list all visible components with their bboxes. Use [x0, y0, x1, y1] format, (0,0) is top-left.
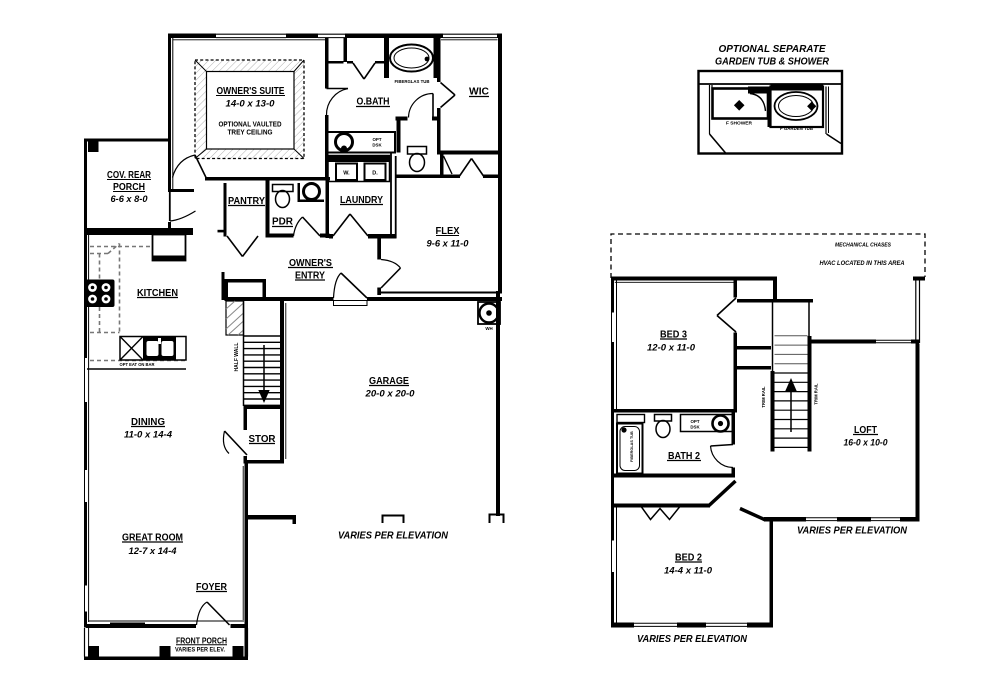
svg-text:TRIM RAIL: TRIM RAIL	[761, 386, 766, 408]
svg-text:VARIES PER ELEVATION: VARIES PER ELEVATION	[797, 525, 907, 537]
svg-text:TRIM RAIL: TRIM RAIL	[814, 383, 819, 405]
svg-text:20-0 x 20-0: 20-0 x 20-0	[364, 389, 415, 400]
svg-text:FRONT PORCH: FRONT PORCH	[176, 636, 227, 646]
svg-text:14-4 x 11-0: 14-4 x 11-0	[664, 566, 713, 577]
svg-text:W.: W.	[343, 171, 350, 177]
svg-text:12-7 x 14-4: 12-7 x 14-4	[129, 546, 178, 557]
svg-text:VARIES PER ELEV.: VARIES PER ELEV.	[175, 647, 225, 654]
svg-text:14-0 x 13-0: 14-0 x 13-0	[226, 99, 276, 110]
svg-text:TREY CEILING: TREY CEILING	[228, 130, 273, 137]
svg-text:11-0 x 14-4: 11-0 x 14-4	[124, 430, 173, 441]
svg-text:DSK: DSK	[372, 143, 382, 148]
svg-text:PDR: PDR	[272, 217, 294, 228]
svg-text:VARIES PER ELEVATION: VARIES PER ELEVATION	[338, 530, 448, 542]
svg-text:GARDEN TUB & SHOWER: GARDEN TUB & SHOWER	[715, 56, 829, 68]
svg-text:FIBERGLAS TUB: FIBERGLAS TUB	[630, 431, 634, 462]
svg-text:O.BATH: O.BATH	[357, 97, 390, 108]
svg-text:F GARDEN TUB: F GARDEN TUB	[780, 126, 813, 131]
svg-text:FIBERGLAS TUB: FIBERGLAS TUB	[395, 79, 430, 84]
svg-text:OPTIONAL SEPARATE: OPTIONAL SEPARATE	[719, 43, 827, 55]
svg-text:16-0 x 10-0: 16-0 x 10-0	[844, 438, 889, 449]
svg-text:MECHANICAL CHASES: MECHANICAL CHASES	[835, 243, 892, 249]
svg-text:D.: D.	[372, 171, 378, 177]
svg-text:WH: WH	[485, 326, 492, 331]
svg-text:OPT EAT ON BAR: OPT EAT ON BAR	[120, 362, 156, 367]
svg-text:OPT: OPT	[372, 137, 381, 142]
svg-text:DSK: DSK	[690, 425, 700, 430]
svg-text:9-6 x 11-0: 9-6 x 11-0	[427, 239, 470, 250]
svg-text:6-6 x 8-0: 6-6 x 8-0	[111, 194, 149, 205]
svg-text:F SHOWER: F SHOWER	[726, 121, 753, 126]
svg-text:HVAC LOCATED IN THIS AREA: HVAC LOCATED IN THIS AREA	[820, 260, 905, 267]
svg-text:OPT: OPT	[690, 419, 699, 424]
svg-text:VARIES PER ELEVATION: VARIES PER ELEVATION	[637, 633, 747, 645]
svg-text:WIC: WIC	[469, 87, 489, 98]
svg-text:HALF WALL: HALF WALL	[234, 343, 240, 372]
svg-text:OPTIONAL VAULTED: OPTIONAL VAULTED	[219, 122, 282, 129]
svg-text:12-0 x 11-0: 12-0 x 11-0	[647, 343, 696, 354]
